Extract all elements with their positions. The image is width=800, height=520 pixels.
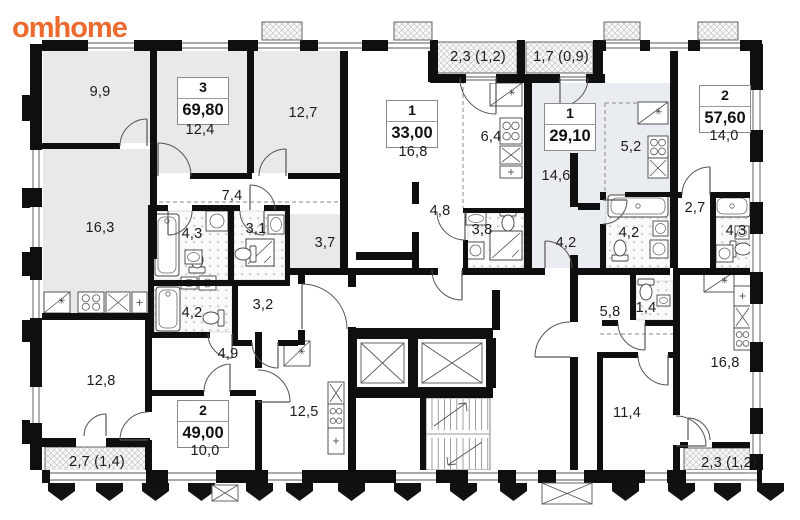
room-area-label: 12,4 xyxy=(185,122,214,138)
wall xyxy=(22,320,30,342)
wall xyxy=(462,268,530,275)
room-area-label: 3,1 xyxy=(246,221,267,237)
facade-element xyxy=(338,483,365,501)
door-arc xyxy=(302,284,347,329)
washing-machine-icon xyxy=(716,245,733,262)
wall xyxy=(290,268,356,275)
room-area-label: 3,7 xyxy=(315,235,336,251)
apartment-rooms-count: 3 xyxy=(178,78,228,99)
wall xyxy=(572,268,670,275)
wall xyxy=(145,320,152,412)
room-area-label: 3,2 xyxy=(253,297,274,313)
svg-text:✳: ✳ xyxy=(508,88,516,98)
door-arc xyxy=(618,323,645,350)
window xyxy=(750,162,763,202)
door-arc xyxy=(682,167,710,195)
bathtub-icon xyxy=(608,195,668,217)
wall xyxy=(22,420,30,444)
floor-plan-drawing: ✳✳✳✳✳ xyxy=(0,0,800,520)
door-arc xyxy=(204,364,230,392)
wall xyxy=(42,143,120,149)
facade-element xyxy=(142,483,169,501)
facade-element xyxy=(450,483,477,501)
plus-icon xyxy=(328,428,344,454)
window xyxy=(750,434,763,454)
wall xyxy=(356,388,493,398)
window xyxy=(30,280,42,318)
facade-element xyxy=(48,483,75,501)
floor-plan-page: omhome ✳✳✳✳✳ 3 69,80 1 33,00 1 29,10 2 5… xyxy=(0,0,800,520)
burners-icon xyxy=(500,118,522,144)
facade-element xyxy=(500,483,527,501)
bathtub-icon xyxy=(714,195,750,217)
sinkx-icon xyxy=(648,158,668,178)
plus-icon xyxy=(500,166,522,178)
room-area-label: 12,8 xyxy=(86,373,115,389)
room-area-label: 4,8 xyxy=(430,203,451,219)
wall xyxy=(42,313,148,320)
apartment-total-area: 29,10 xyxy=(545,125,595,150)
wall xyxy=(496,74,560,83)
wall xyxy=(285,211,290,286)
wall xyxy=(232,286,238,340)
bathtub-icon xyxy=(156,287,180,331)
apartment-total-area: 69,80 xyxy=(178,99,228,124)
window xyxy=(606,40,640,51)
apartment-info-card: 1 33,00 xyxy=(386,100,438,148)
apartment-rooms-count: 1 xyxy=(545,104,595,125)
wall xyxy=(710,198,716,268)
wall xyxy=(298,330,305,345)
window xyxy=(268,470,302,483)
wall xyxy=(356,252,413,260)
room-area-label: 16,3 xyxy=(85,220,114,236)
facade-panel xyxy=(212,485,238,501)
room-area-label: 10,0 xyxy=(190,443,219,459)
wall xyxy=(625,192,670,197)
wall xyxy=(230,390,256,396)
wall xyxy=(570,255,578,322)
wall xyxy=(712,442,750,448)
wall xyxy=(578,203,600,210)
wall xyxy=(255,400,262,470)
room-area-label: 16,8 xyxy=(398,144,427,160)
wall xyxy=(668,352,673,358)
wall xyxy=(264,205,290,211)
window xyxy=(466,74,496,83)
burners-icon xyxy=(648,136,668,158)
window xyxy=(30,387,42,423)
room-area-label: 2,3 (1,2) xyxy=(701,455,757,471)
sink-icon xyxy=(657,295,670,306)
room-area-label: 12,5 xyxy=(289,404,318,420)
wall xyxy=(148,280,290,286)
window xyxy=(560,74,586,83)
svg-text:✳: ✳ xyxy=(655,106,663,116)
apartment-info-card: 3 69,80 xyxy=(177,77,229,125)
room-area-label: 9,9 xyxy=(90,84,111,100)
wall xyxy=(463,240,468,268)
window xyxy=(30,207,42,247)
window xyxy=(388,40,430,51)
elevator-shaft xyxy=(417,338,487,388)
door-arc xyxy=(120,412,148,440)
washing-machine-icon xyxy=(206,211,228,231)
wall xyxy=(524,83,532,275)
room-area-label: 4,2 xyxy=(619,225,640,241)
wall xyxy=(412,182,419,204)
sinkx-icon xyxy=(106,292,130,313)
window xyxy=(30,150,42,188)
wall xyxy=(570,153,578,207)
wall xyxy=(678,268,750,275)
room-area-label: 14,0 xyxy=(709,128,738,144)
fridge-icon: ✳ xyxy=(638,102,668,124)
wall xyxy=(586,74,605,83)
window xyxy=(750,372,763,408)
door-arc xyxy=(688,418,710,440)
wall xyxy=(600,192,606,200)
wall xyxy=(673,445,680,470)
facade-element xyxy=(714,483,741,501)
fridge-icon: ✳ xyxy=(490,83,522,106)
wall xyxy=(278,340,298,346)
logo-part-home: home xyxy=(54,12,127,44)
wall xyxy=(247,45,254,173)
apartment-rooms-count: 2 xyxy=(178,401,228,422)
wall xyxy=(670,51,678,268)
window xyxy=(396,470,436,483)
facade-element xyxy=(286,483,313,501)
door-arc xyxy=(535,322,570,357)
wall xyxy=(602,320,618,326)
room-area-label: 2,7 (1,4) xyxy=(69,454,125,470)
elevator-shaft xyxy=(356,338,409,388)
room-area-label: 1,4 xyxy=(636,300,657,316)
facade-panel xyxy=(542,483,592,504)
wall xyxy=(710,192,752,198)
apartment-info-card: 2 49,00 xyxy=(177,400,229,448)
room-area-label: 4,3 xyxy=(182,226,203,242)
logo: omhome xyxy=(12,14,127,43)
sinkx-icon xyxy=(328,382,344,404)
wall xyxy=(597,358,603,470)
wall xyxy=(42,438,76,447)
window xyxy=(750,234,763,272)
window xyxy=(556,470,584,483)
wall xyxy=(298,275,305,284)
room-area-label: 11,4 xyxy=(613,405,641,421)
window xyxy=(318,40,362,51)
svg-text:✳: ✳ xyxy=(721,275,729,285)
facade-panel xyxy=(698,22,738,40)
wall xyxy=(340,51,348,275)
fridge-icon: ✳ xyxy=(44,292,70,313)
wall xyxy=(150,51,157,149)
staircase xyxy=(426,398,490,470)
door-arc xyxy=(84,414,106,436)
wall xyxy=(106,438,150,447)
room-area-label: 7,4 xyxy=(222,188,243,204)
wall xyxy=(228,205,234,286)
wall xyxy=(190,173,252,179)
window xyxy=(645,470,667,483)
wall xyxy=(487,338,496,388)
facade-element xyxy=(612,483,639,501)
room-area-label: 4,2 xyxy=(556,235,577,251)
shower-icon xyxy=(490,231,522,260)
apartment-info-card: 1 29,10 xyxy=(544,103,596,151)
wall xyxy=(673,268,680,415)
facade-element xyxy=(394,483,421,501)
wall xyxy=(22,95,30,121)
logo-part-om: om xyxy=(12,12,54,44)
room-area-label: 6,4 xyxy=(481,129,502,145)
window xyxy=(182,40,228,51)
sink-icon xyxy=(653,221,668,236)
wall xyxy=(600,224,606,268)
apartment-total-area: 33,00 xyxy=(387,122,437,147)
window xyxy=(700,40,740,51)
facade-panel xyxy=(604,22,640,40)
apartment-info-card: 2 57,60 xyxy=(699,85,751,133)
room-area-label: 5,8 xyxy=(600,304,621,320)
sinkx-icon xyxy=(500,146,522,164)
sink-icon xyxy=(185,250,202,264)
window xyxy=(750,304,763,342)
window xyxy=(468,470,498,483)
svg-text:✳: ✳ xyxy=(298,347,306,357)
wall xyxy=(152,390,204,396)
sinkx-icon xyxy=(734,306,751,328)
facade-panel xyxy=(262,22,302,40)
room-area-label: 3,8 xyxy=(472,222,493,238)
washing-machine-icon xyxy=(650,240,668,258)
wall xyxy=(148,332,210,338)
bathtub-icon xyxy=(155,214,179,276)
facade-element xyxy=(757,483,784,501)
window xyxy=(516,470,538,483)
window xyxy=(650,40,688,51)
wall xyxy=(288,173,346,179)
facade-element xyxy=(246,483,273,501)
room-area-label: 4,2 xyxy=(182,305,203,321)
room-area-label: 4,9 xyxy=(218,346,239,362)
wall xyxy=(409,338,417,388)
wall xyxy=(463,208,468,212)
wall xyxy=(255,332,262,368)
wall xyxy=(356,328,493,338)
window xyxy=(258,40,300,51)
wall xyxy=(348,327,356,470)
facade-element xyxy=(668,483,695,501)
washing-machine-icon xyxy=(467,242,484,259)
wall xyxy=(645,320,673,326)
wall xyxy=(148,205,154,280)
facade-element xyxy=(96,483,123,501)
wall xyxy=(520,268,545,275)
room-area-label: 14,6 xyxy=(541,168,570,184)
wall xyxy=(348,268,412,275)
facade-panel xyxy=(394,22,432,40)
apartment-rooms-count: 1 xyxy=(387,101,437,122)
apartment-rooms-count: 2 xyxy=(700,86,750,107)
room-area-label: 2,3 (1,2) xyxy=(450,49,506,65)
wall xyxy=(492,290,500,330)
room-area-label: 12,7 xyxy=(288,105,317,121)
wall xyxy=(412,232,419,268)
burners-icon xyxy=(734,328,751,350)
sink-icon xyxy=(268,215,284,234)
wall xyxy=(412,268,438,275)
svg-text:✳: ✳ xyxy=(58,296,66,306)
plus-icon xyxy=(132,292,147,313)
wall xyxy=(463,208,524,213)
room-area-label: 1,7 (0,9) xyxy=(533,49,589,65)
burners-icon xyxy=(328,404,344,428)
burners-icon xyxy=(78,292,104,313)
wall xyxy=(22,252,30,276)
wall xyxy=(348,275,356,287)
wall xyxy=(570,357,578,470)
window xyxy=(168,470,216,483)
wall xyxy=(22,188,30,208)
wall xyxy=(420,398,426,470)
window xyxy=(50,470,146,483)
door-arc xyxy=(258,370,290,402)
door-arc xyxy=(676,416,706,446)
window xyxy=(750,90,763,130)
wall xyxy=(680,442,688,448)
room-area-label: 2,7 xyxy=(685,200,706,216)
facade-element xyxy=(188,483,215,501)
plus-icon xyxy=(734,286,751,306)
room-area-label: 16,8 xyxy=(710,355,739,371)
door-arc xyxy=(638,355,668,385)
room-area-label: 4,3 xyxy=(726,223,747,239)
window xyxy=(686,470,746,483)
room-area-label: 5,2 xyxy=(621,139,642,155)
wall xyxy=(678,192,682,198)
wall xyxy=(597,352,638,358)
